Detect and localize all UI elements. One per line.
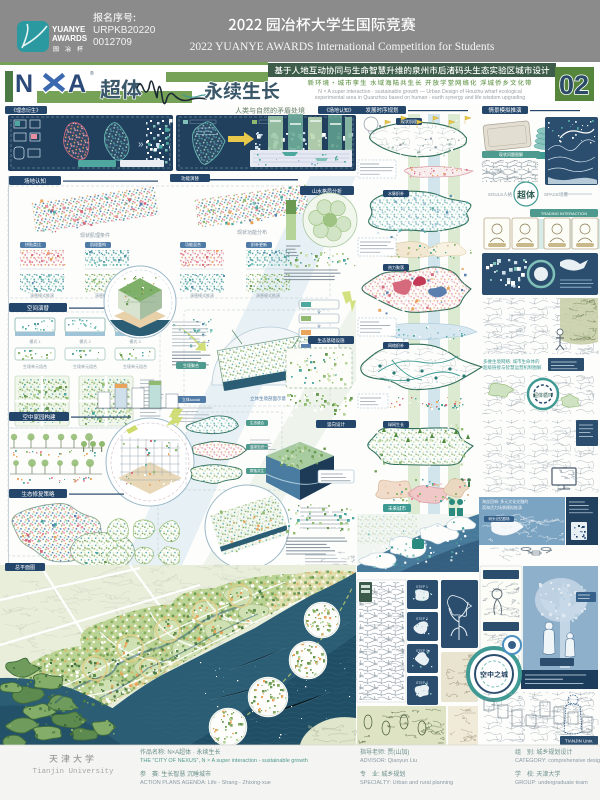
svg-text:生态修复策略: 生态修复策略 xyxy=(21,490,55,498)
svg-text:指导老师: 贾(山加): 指导老师: 贾(山加) xyxy=(360,748,409,756)
svg-text:CATEGORY: comprehensive design: CATEGORY: comprehensive design xyxy=(515,758,600,764)
svg-text:YUANYE: YUANYE xyxy=(52,25,86,34)
svg-text:专 业: 城乡规划: 专 业: 城乡规划 xyxy=(360,770,405,778)
svg-text:超体循环: 超体循环 xyxy=(533,392,553,399)
svg-text:学 校: 天津大学: 学 校: 天津大学 xyxy=(515,770,560,778)
svg-text:模式 2: 模式 2 xyxy=(79,338,91,344)
svg-text:N: N xyxy=(15,70,33,98)
svg-text:experimental area in Quanzhou: experimental area in Quanzhou based on h… xyxy=(315,95,525,101)
svg-text:海丝回响: 多元文化交融的: 海丝回响: 多元文化交融的 xyxy=(482,498,528,504)
svg-text:Tianjin University: Tianjin University xyxy=(32,768,114,776)
svg-text:组 别: 城乡规划设计: 组 别: 城乡规划设计 xyxy=(515,748,572,756)
svg-text:群落共生: 群落共生 xyxy=(250,468,264,473)
svg-text:SOULS人格: SOULS人格 xyxy=(488,191,513,198)
svg-text:滨海活力场景模拟推演: 滨海活力场景模拟推演 xyxy=(482,504,522,510)
svg-text:织补更新: 织补更新 xyxy=(251,241,267,247)
svg-text:生境单元组合: 生境单元组合 xyxy=(23,363,47,369)
svg-text:参 赛: 生长智慧 沉睡城市: 参 赛: 生长智慧 沉睡城市 xyxy=(140,770,211,778)
svg-text:现状问题图解: 现状问题图解 xyxy=(499,151,523,157)
svg-text:STEP 2: STEP 2 xyxy=(416,617,428,621)
svg-text:水脉织补: 水脉织补 xyxy=(388,190,404,196)
svg-text:生态缝合: 生态缝合 xyxy=(250,420,264,425)
svg-text:2022 YUANYE AWARDS Internation: 2022 YUANYE AWARDS International Competi… xyxy=(190,41,495,53)
svg-text:演替模式推演: 演替模式推演 xyxy=(256,292,280,298)
svg-text:立体social: 立体social xyxy=(182,396,200,402)
svg-text:空中家园构建: 空中家园构建 xyxy=(22,413,56,421)
svg-text:作品名称: N×A超体 · 永续生长: 作品名称: N×A超体 · 永续生长 xyxy=(140,748,221,756)
svg-text:GROUP: undergraduate team: GROUP: undergraduate team xyxy=(515,780,588,786)
svg-text:模式 1: 模式 1 xyxy=(29,338,41,344)
svg-text:生境聚合: 生境聚合 xyxy=(183,362,199,368)
svg-text:多维生境网络: 城市生命体的: 多维生境网络: 城市生命体的 xyxy=(483,358,540,365)
svg-text:竖向设计: 竖向设计 xyxy=(327,421,345,428)
svg-text:发展时序规划: 发展时序规划 xyxy=(365,106,398,114)
svg-text:热力聚落: 热力聚落 xyxy=(388,264,404,270)
svg-text:A: A xyxy=(68,70,86,98)
svg-text:空间演替: 空间演替 xyxy=(27,304,50,312)
svg-text:TRADING INTERACTION: TRADING INTERACTION xyxy=(541,211,587,216)
svg-text:生态基础设施: 生态基础设施 xyxy=(318,337,345,344)
svg-text:码头记忆剧场: 码头记忆剧场 xyxy=(489,516,510,521)
svg-text:»: » xyxy=(138,139,144,150)
svg-text:STEP 4: STEP 4 xyxy=(416,681,428,685)
svg-text:情景模拟推演: 情景模拟推演 xyxy=(488,106,522,114)
svg-text:SPACE场景: SPACE场景 xyxy=(544,191,568,198)
svg-text:肌理重构: 肌理重构 xyxy=(90,241,106,247)
svg-text:超级链接与智慧运营机制图解: 超级链接与智慧运营机制图解 xyxy=(483,364,542,371)
svg-text:TIANJIN Univ.: TIANJIN Univ. xyxy=(565,739,593,744)
svg-text:模式 3: 模式 3 xyxy=(129,338,141,344)
svg-text:功能混合: 功能混合 xyxy=(185,241,201,247)
svg-text:THE "CITY OF NEXUS", N × A sup: THE "CITY OF NEXUS", N × A super interac… xyxy=(140,758,308,764)
svg-text:生境单元组合: 生境单元组合 xyxy=(73,363,97,369)
svg-text:现状肌理条件: 现状肌理条件 xyxy=(80,232,110,239)
svg-text:®: ® xyxy=(90,70,94,77)
svg-text:绿网生长: 绿网生长 xyxy=(388,421,404,427)
svg-text:演替模式推演: 演替模式推演 xyxy=(190,292,214,298)
svg-text:立体生境剖面示意: 立体生境剖面示意 xyxy=(250,395,286,402)
svg-text:拼贴类比: 拼贴类比 xyxy=(25,241,41,247)
svg-text:AWARDS: AWARDS xyxy=(52,34,88,43)
svg-text:生境单元组合: 生境单元组合 xyxy=(123,363,147,369)
svg-text:0012709: 0012709 xyxy=(93,37,132,48)
svg-text:SPECIALTY: Urban and rural pla: SPECIALTY: Urban and rural planning xyxy=(360,780,453,786)
svg-text:现状功能分布: 现状功能分布 xyxy=(237,229,267,236)
svg-text:场地认知: 场地认知 xyxy=(24,177,46,185)
svg-text:《理念衍生》: 《理念衍生》 xyxy=(11,107,41,114)
svg-text:URPKB20220: URPKB20220 xyxy=(93,25,156,36)
svg-text:功能演替: 功能演替 xyxy=(181,175,199,182)
svg-text:未来城市: 未来城市 xyxy=(388,505,406,512)
svg-text:02: 02 xyxy=(559,70,589,100)
svg-text:演替模式推演: 演替模式推演 xyxy=(30,292,54,298)
svg-text:网络织补: 网络织补 xyxy=(388,342,404,348)
svg-text:STEP 1: STEP 1 xyxy=(416,585,428,589)
svg-text:ADVISOR: Qiaoyun Liu: ADVISOR: Qiaoyun Liu xyxy=(360,758,417,764)
svg-text:《场地认知》: 《场地认知》 xyxy=(324,107,354,114)
svg-text:STEP 3: STEP 3 xyxy=(416,649,428,653)
svg-text:总平面图: 总平面图 xyxy=(15,564,35,571)
svg-text:ACTION PLANS AGENDA: Life - Sh: ACTION PLANS AGENDA: Life - Shang - Zhix… xyxy=(140,780,271,786)
